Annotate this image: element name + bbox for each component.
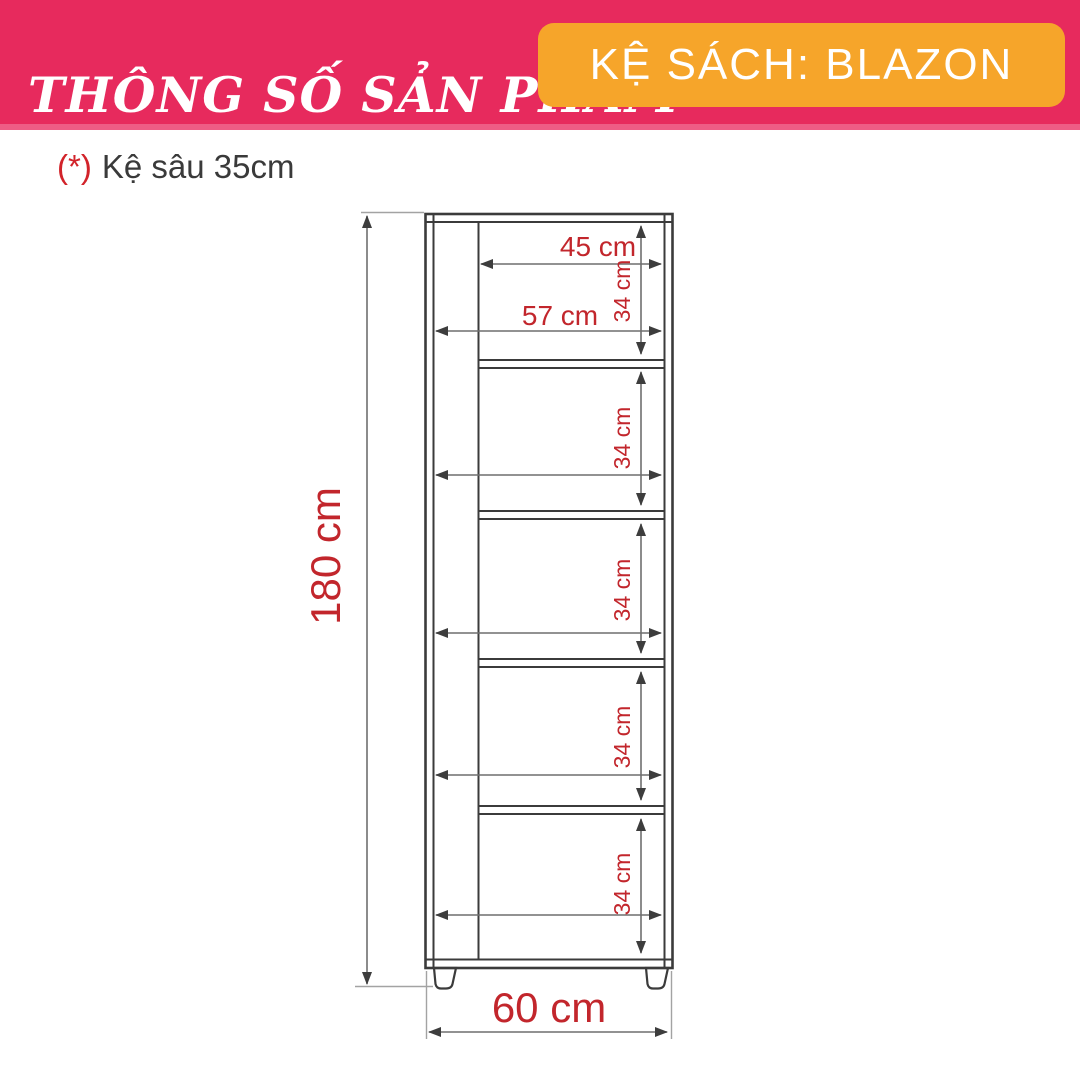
top-inner-width-label: 45 cm <box>560 231 636 262</box>
dimension-drawing: 180 cm 60 cm 45 cm 57 cm 34 cm 34 cm 34 … <box>0 0 1080 1080</box>
product-spec-sheet: THÔNG SỐ SẢN PHẨM KỆ SÁCH: BLAZON (*)Kệ … <box>0 0 1080 1080</box>
shelf-height-label: 34 cm <box>609 559 635 622</box>
shelf-height-label: 34 cm <box>609 853 635 916</box>
width-dimension-label: 60 cm <box>492 984 606 1031</box>
shelf-height-label: 34 cm <box>609 407 635 470</box>
inner-width-label: 57 cm <box>522 300 598 331</box>
height-dimension-label: 180 cm <box>302 487 349 625</box>
shelf-height-label: 34 cm <box>609 260 635 323</box>
shelf-height-label: 34 cm <box>609 706 635 769</box>
shelf-lines <box>478 360 665 814</box>
